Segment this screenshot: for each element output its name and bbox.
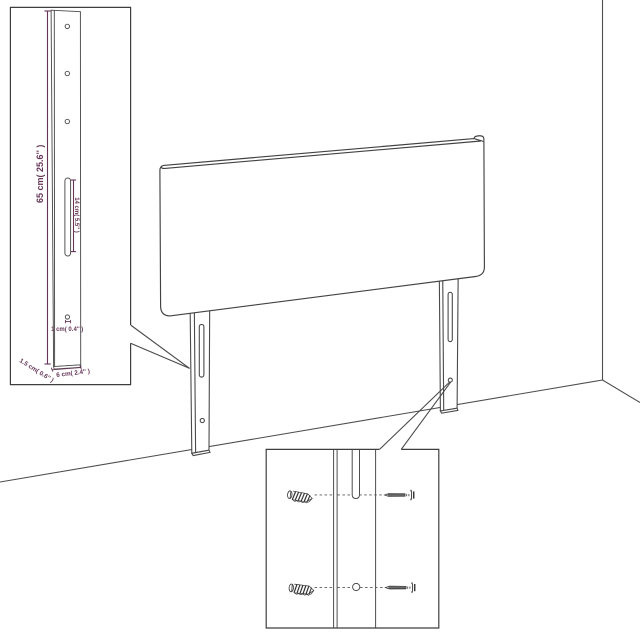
- svg-text:1 cm( 0.4'' ): 1 cm( 0.4'' ): [51, 327, 83, 333]
- svg-text:14 cm( 5.5'' ): 14 cm( 5.5'' ): [73, 197, 79, 233]
- svg-text:65 cm( 25.6'' ): 65 cm( 25.6'' ): [35, 145, 45, 203]
